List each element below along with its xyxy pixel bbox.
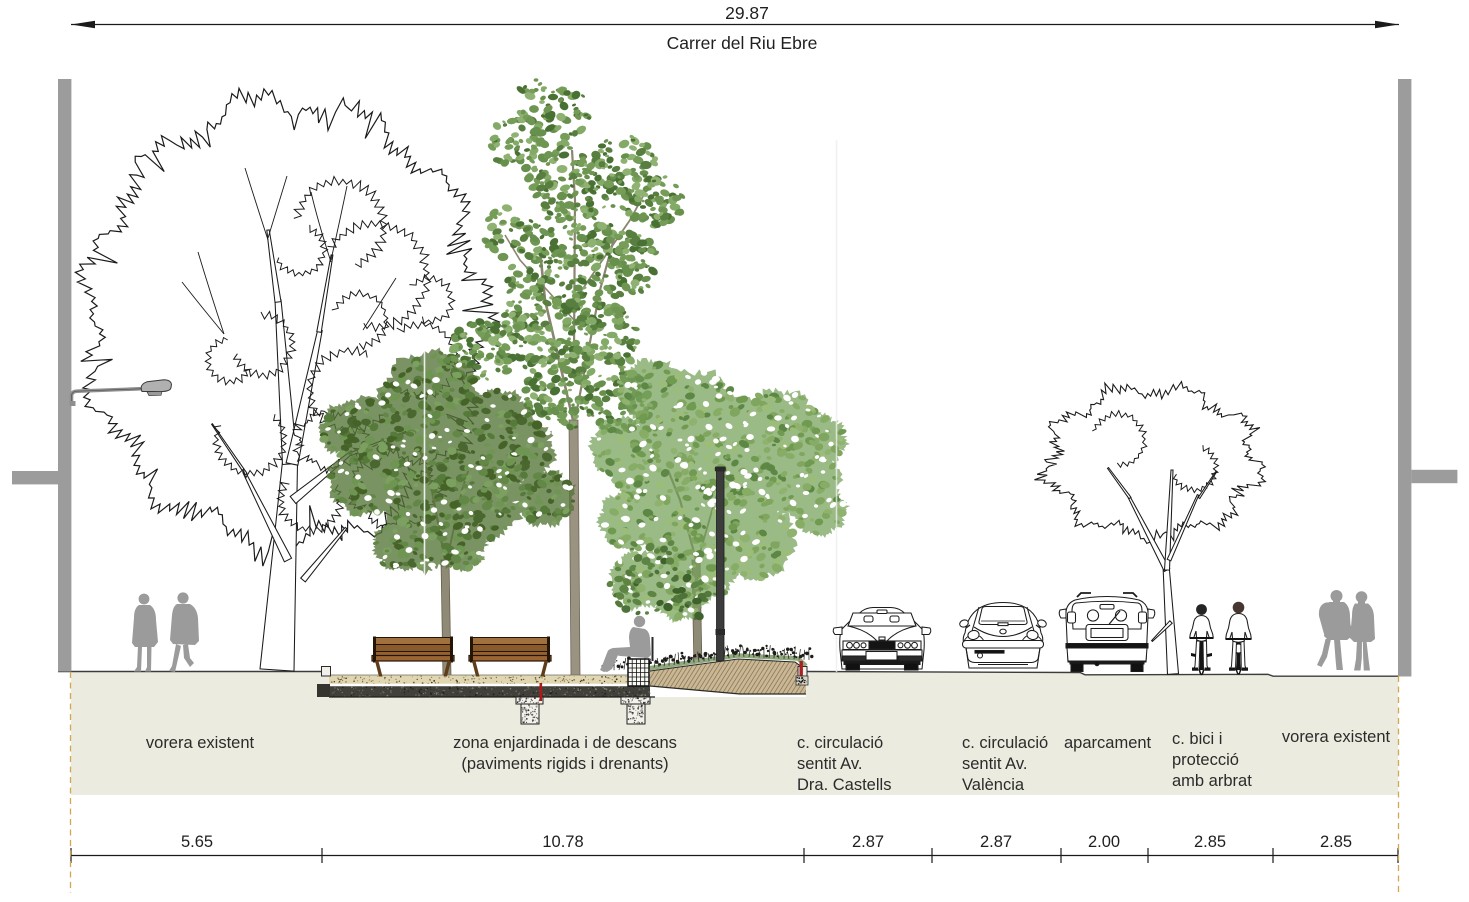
- svg-text:2.85: 2.85: [1320, 833, 1352, 851]
- svg-text:vorera existent: vorera existent: [146, 734, 255, 752]
- svg-text:Dra. Castells: Dra. Castells: [797, 776, 891, 794]
- svg-text:c. bici i: c. bici i: [1172, 730, 1222, 748]
- svg-text:amb arbrat: amb arbrat: [1172, 772, 1252, 790]
- svg-text:sentit Av.: sentit Av.: [797, 755, 862, 773]
- svg-text:c. circulació: c. circulació: [962, 734, 1048, 752]
- svg-text:2.87: 2.87: [852, 833, 884, 851]
- svg-text:protecció: protecció: [1172, 751, 1239, 769]
- svg-text:Carrer del Riu Ebre: Carrer del Riu Ebre: [667, 33, 818, 53]
- svg-text:València: València: [962, 776, 1025, 794]
- svg-text:29.87: 29.87: [725, 3, 769, 23]
- svg-text:(paviments rigids i drenants): (paviments rigids i drenants): [461, 755, 668, 773]
- svg-text:2.00: 2.00: [1088, 833, 1120, 851]
- svg-text:c. circulació: c. circulació: [797, 734, 883, 752]
- svg-text:sentit Av.: sentit Av.: [962, 755, 1027, 773]
- svg-text:2.87: 2.87: [980, 833, 1012, 851]
- svg-text:aparcament: aparcament: [1064, 734, 1152, 752]
- svg-text:2.85: 2.85: [1194, 833, 1226, 851]
- svg-text:5.65: 5.65: [181, 833, 213, 851]
- svg-text:10.78: 10.78: [542, 833, 583, 851]
- svg-text:vorera existent: vorera existent: [1282, 728, 1391, 746]
- svg-text:zona enjardinada i de descans: zona enjardinada i de descans: [453, 734, 677, 752]
